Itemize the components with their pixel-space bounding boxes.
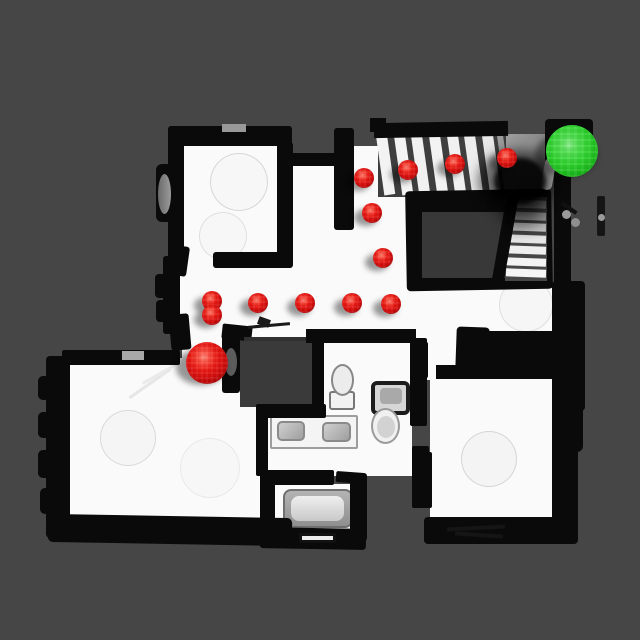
stairs-right-tread-7 (506, 268, 546, 277)
wall-stairs-top-tab (370, 118, 386, 132)
wall-room-bl-left-bump-1 (38, 376, 50, 400)
toilet-2-seat (377, 416, 395, 438)
roof-notch-gray (222, 124, 246, 132)
wall-room-bl-bottom (48, 514, 292, 546)
alcove-inner (158, 174, 171, 214)
wall-room-bl-top (62, 350, 180, 365)
waypoint-marker-2[interactable] (202, 305, 222, 325)
wall-vanity-left (256, 404, 268, 476)
wall-room-br-right-bump (571, 392, 583, 452)
wall-hall-left-bump-2 (156, 300, 167, 322)
wall-room-br-top (436, 365, 558, 379)
waypoint-marker-6[interactable] (381, 294, 401, 314)
goal-shadow-streak (500, 190, 542, 230)
wall-hall-corner (168, 313, 191, 351)
wall-hall-left-bump-1 (155, 274, 166, 298)
railing-knob-1 (562, 210, 571, 219)
waypoint-marker-5[interactable] (342, 293, 362, 313)
start-marker[interactable] (186, 342, 228, 384)
waypoint-marker-11[interactable] (445, 154, 465, 174)
bathroom-sink-basin (380, 388, 402, 404)
wall-room-bl-left-bump-3 (38, 450, 51, 478)
toilet-bowl (331, 364, 354, 396)
vanity-basin-left (277, 421, 305, 441)
waypoint-marker-10[interactable] (398, 160, 418, 180)
wall-vanity-top (258, 404, 326, 418)
stairs-right-tread-5 (506, 245, 546, 254)
wall-room-br-left-2 (411, 374, 424, 426)
railing-post-knob (598, 214, 605, 221)
wall-hall-right-bottom (486, 331, 556, 365)
wall-room-bl-left-bump-2 (38, 412, 50, 438)
room-topleft-rug-circle (210, 153, 268, 211)
bathtub-inner (291, 496, 344, 521)
waypoint-marker-12[interactable] (497, 148, 517, 168)
wall-corridor-top (278, 153, 338, 166)
waypoint-marker-4[interactable] (295, 293, 315, 313)
wall-room-br-left-3 (415, 452, 432, 508)
room-bottomleft-rug-circle-2 (180, 438, 240, 498)
wall-room-bl-left-bump-4 (40, 488, 52, 514)
vanity-basin-right (322, 422, 351, 442)
room-bottomright-rug-circle (461, 431, 517, 487)
shower-door-stub (299, 533, 336, 543)
door-room-bl (122, 351, 144, 360)
railing-knob-2 (571, 218, 580, 227)
scene-canvas (0, 0, 640, 640)
waypoint-marker-7[interactable] (373, 248, 393, 268)
wall-stairs-top-band (374, 121, 508, 138)
waypoint-marker-3[interactable] (248, 293, 268, 313)
stairs-right-tread-6 (506, 257, 546, 266)
waypoint-marker-9[interactable] (354, 168, 374, 188)
wall-bathroom-left (312, 340, 324, 408)
corridor-upper-left-floor (290, 164, 336, 270)
room-bottomleft-rug-circle (100, 410, 156, 466)
goal-marker[interactable] (546, 125, 598, 177)
wall-room-br-left-1 (414, 342, 428, 378)
wall-room-topleft-bottom (213, 252, 293, 268)
waypoint-marker-8[interactable] (362, 203, 382, 223)
